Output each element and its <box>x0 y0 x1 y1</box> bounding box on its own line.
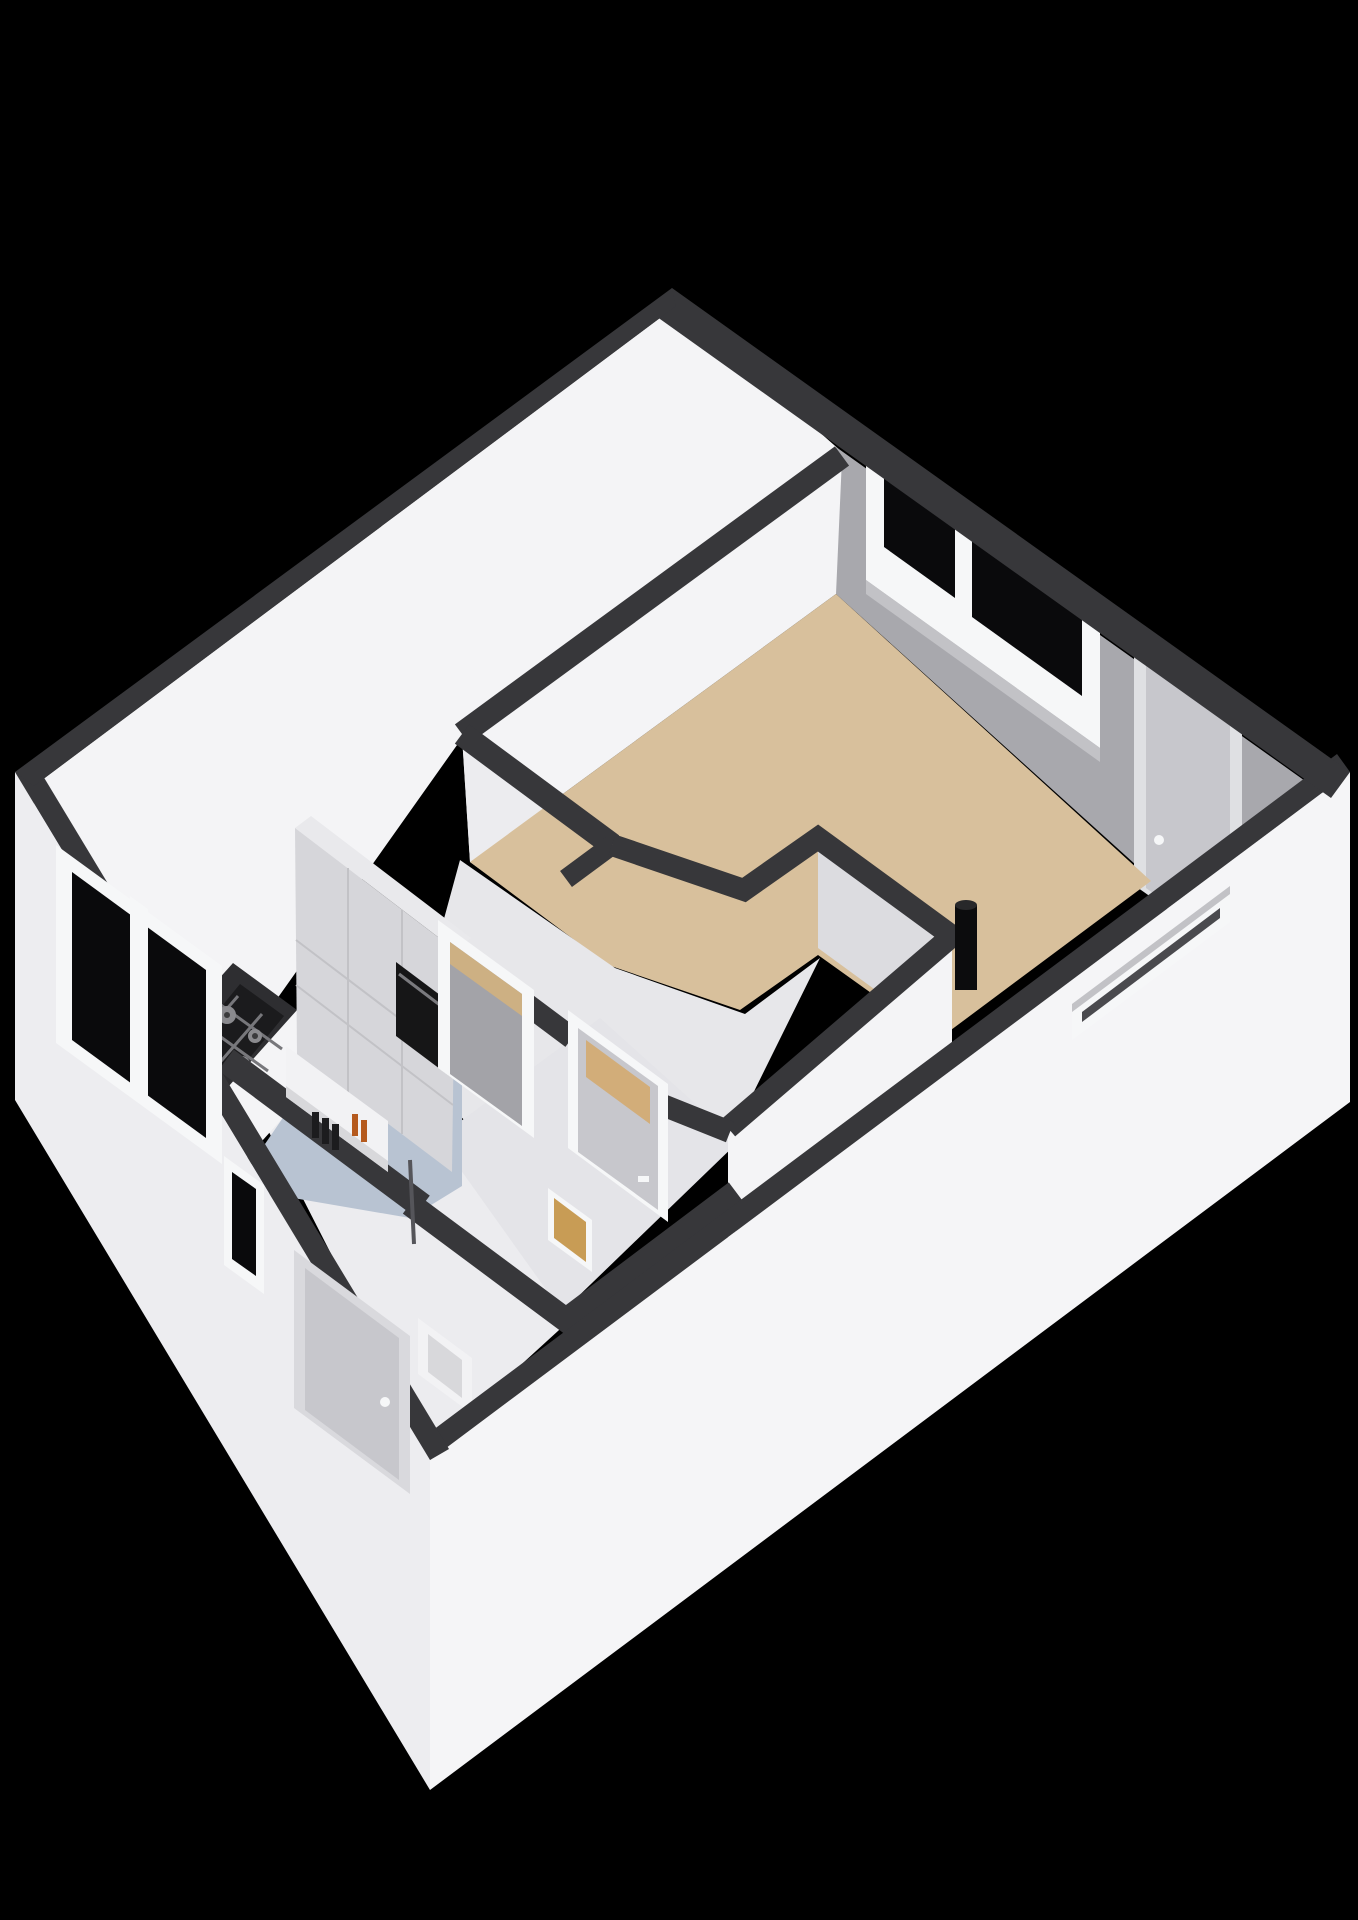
hall-door-handle <box>638 1176 649 1182</box>
burner-1-cap <box>224 1012 230 1018</box>
floorplan-render <box>0 0 1358 1920</box>
flue-pipe <box>955 905 977 990</box>
flue-pipe-top <box>955 900 977 910</box>
front-door-handle <box>380 1397 390 1407</box>
bottle-dark-3 <box>332 1124 339 1150</box>
bottle-dark-1 <box>312 1112 319 1138</box>
burner-2-cap <box>252 1033 258 1039</box>
living-door-handle <box>1154 835 1164 845</box>
small-window-glass <box>232 1172 256 1276</box>
kitchen-window-mullion <box>130 896 148 1106</box>
floorplan-svg <box>0 0 1358 1920</box>
bottle-orange-2 <box>361 1120 367 1142</box>
bottle-orange-1 <box>352 1114 358 1136</box>
bottle-dark-2 <box>322 1118 329 1144</box>
